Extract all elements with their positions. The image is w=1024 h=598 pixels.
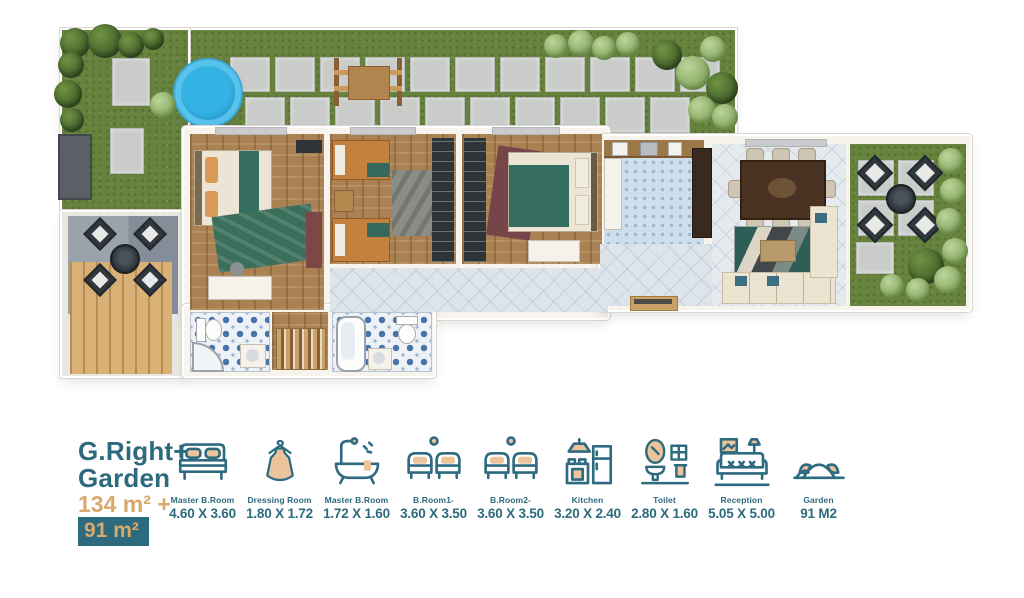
stepping-stone [605, 97, 645, 133]
toilet-bowl [205, 319, 222, 341]
window [745, 139, 827, 147]
bush [880, 274, 904, 298]
bbq-grill [58, 134, 92, 200]
tree [142, 28, 164, 50]
double-bed [508, 152, 598, 232]
legend-item-bedroom2: B.Room2- 3.60 X 3.50 [472, 430, 549, 521]
desk-chair [230, 262, 244, 276]
kitchen-sink [668, 142, 682, 156]
bathtub-icon [318, 430, 395, 490]
reception-icon [703, 430, 780, 490]
patio-table [110, 244, 140, 274]
legend-item-kitchen: Kitchen 3.20 X 2.40 [549, 430, 626, 521]
stove [640, 142, 658, 156]
window [350, 127, 416, 135]
stepping-stone [112, 58, 150, 106]
kitchen-icon [549, 430, 626, 490]
stepping-stone [650, 97, 690, 133]
kitchen-cabinet [604, 158, 622, 230]
floor-plan [0, 0, 1024, 400]
sink [368, 348, 392, 370]
legend-item-garden: Garden 91 M2 [780, 430, 857, 521]
twin-beds-icon [395, 430, 472, 490]
toilet-icon [626, 430, 703, 490]
cooktop [612, 142, 628, 156]
bedroom1-rug [392, 170, 434, 236]
stepping-stone [500, 57, 540, 92]
stepping-stone [410, 57, 450, 92]
legend-item-reception: Reception 5.05 X 5.00 [703, 430, 780, 521]
stepping-stone [455, 57, 495, 92]
bush [700, 36, 726, 62]
bush [676, 56, 710, 90]
bedroom2-desk [528, 240, 580, 262]
legend-item-dressing-room: Dressing Room 1.80 X 1.72 [241, 430, 318, 521]
stepping-stone [275, 57, 315, 92]
entrance-step [630, 296, 678, 311]
double-bed-icon [164, 430, 241, 490]
legend-item-master-bedroom: Master B.Room 4.60 X 3.60 [164, 430, 241, 521]
toilet-bowl [398, 324, 416, 344]
wardrobe [464, 138, 486, 262]
legend-item-master-bath: Master B.Room 1.72 X 1.60 [318, 430, 395, 521]
floor-plan-sheet: G.Right+ Garden 134 m² + 91 m² Master B.… [0, 0, 1024, 598]
garden-icon [780, 430, 857, 490]
bush [150, 92, 176, 118]
wardrobe [432, 138, 454, 262]
stepping-stone [590, 57, 630, 92]
sun-lounger [332, 56, 404, 108]
bush [712, 104, 738, 130]
stepping-stone [545, 57, 585, 92]
sofa-chaise [810, 206, 838, 278]
window [492, 127, 560, 135]
legend-item-bedroom1: B.Room1- 3.60 X 3.50 [395, 430, 472, 521]
bush [544, 34, 568, 58]
legend-item-toilet: Toilet 2.80 X 1.60 [626, 430, 703, 521]
hallway [330, 268, 608, 312]
legend-items: Master B.Room 4.60 X 3.60 Dressing Room … [164, 430, 857, 521]
bush [568, 30, 594, 56]
bush [906, 278, 930, 302]
bush [940, 178, 966, 204]
single-bed [332, 218, 390, 262]
stepping-stone [110, 128, 144, 174]
bush [942, 238, 968, 264]
bush [934, 266, 962, 294]
single-bed [332, 140, 390, 180]
garden-paver [856, 242, 894, 274]
kitchen-bar [692, 148, 712, 238]
sink [240, 344, 266, 368]
garden-table [886, 184, 916, 214]
master-desk [208, 276, 272, 300]
dress-icon [241, 430, 318, 490]
tv-unit [296, 140, 322, 153]
bush [938, 148, 964, 174]
window [215, 127, 287, 135]
bush [592, 36, 616, 60]
bush [936, 208, 962, 234]
accent-rug [306, 212, 322, 268]
tree [118, 32, 144, 58]
hanging-clothes [276, 328, 326, 370]
coffee-table [760, 240, 796, 262]
tree [58, 52, 84, 78]
area-garden-badge: 91 m² [78, 517, 149, 546]
bathtub [336, 316, 366, 372]
tree [54, 80, 82, 108]
twin-beds-icon [472, 430, 549, 490]
swimming-pool [175, 60, 241, 126]
tree [88, 24, 122, 58]
tree [60, 108, 84, 132]
nightstand [334, 190, 354, 212]
bush [616, 32, 640, 56]
